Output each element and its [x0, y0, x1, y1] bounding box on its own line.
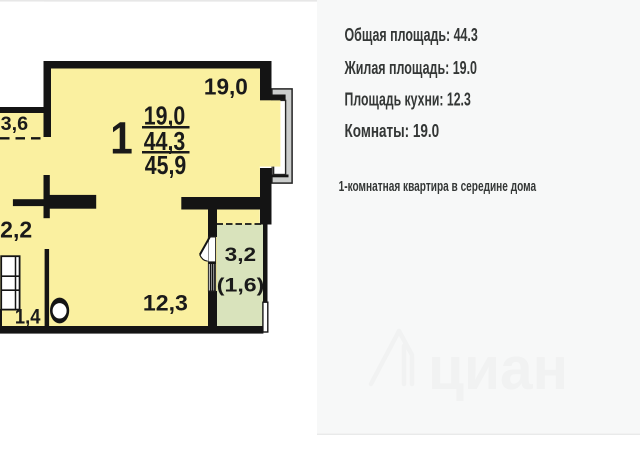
svg-text:3,2: 3,2: [225, 245, 257, 266]
svg-text:циан: циан: [428, 335, 568, 402]
svg-text:45,9: 45,9: [145, 152, 187, 180]
svg-text:2,2: 2,2: [0, 217, 32, 243]
svg-text:Площадь кухни: 12.3: Площадь кухни: 12.3: [345, 90, 471, 110]
svg-text:19,0: 19,0: [204, 74, 248, 100]
svg-text:12,3: 12,3: [143, 291, 188, 316]
svg-text:Комнаты: 19.0: Комнаты: 19.0: [345, 121, 440, 141]
svg-text:1,4: 1,4: [15, 305, 41, 329]
svg-text:3,6: 3,6: [1, 113, 29, 135]
svg-text:Жилая площадь: 19.0: Жилая площадь: 19.0: [344, 58, 477, 78]
svg-text:1: 1: [110, 112, 133, 163]
svg-text:(1,6): (1,6): [217, 274, 264, 296]
svg-text:1-комнатная квартира в середин: 1-комнатная квартира в середине дома: [339, 178, 537, 195]
svg-text:Общая площадь: 44.3: Общая площадь: 44.3: [345, 25, 478, 45]
